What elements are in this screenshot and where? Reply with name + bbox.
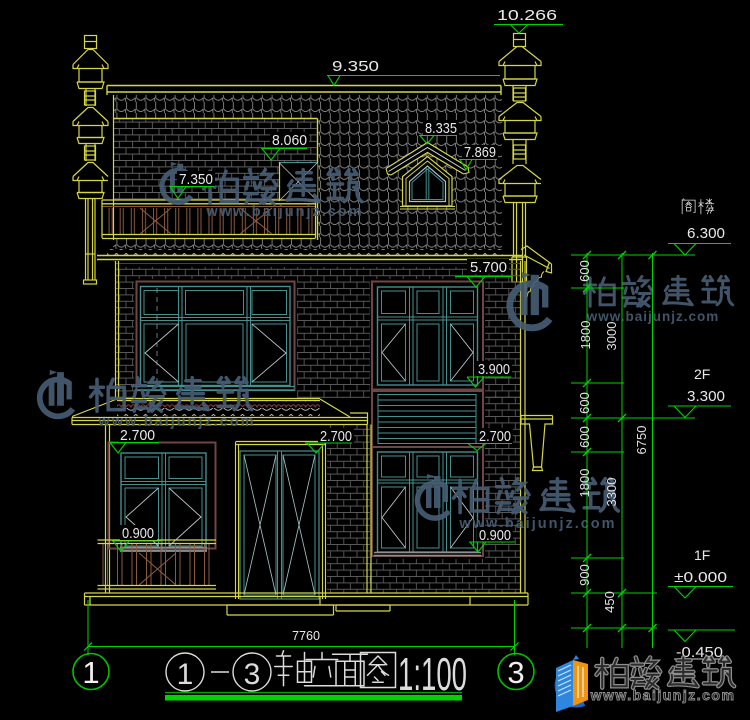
- svg-text:600: 600: [577, 392, 592, 414]
- svg-text:600: 600: [577, 260, 592, 282]
- svg-text:3300: 3300: [604, 478, 619, 507]
- svg-text:7760: 7760: [292, 628, 320, 643]
- svg-text:±0.000: ±0.000: [674, 569, 727, 586]
- svg-text:3: 3: [507, 655, 524, 690]
- svg-text:www.baijunjz.com: www.baijunjz.com: [590, 687, 736, 703]
- svg-text:3.300: 3.300: [687, 388, 725, 405]
- svg-text:9.350: 9.350: [332, 58, 379, 75]
- svg-text:7.869: 7.869: [464, 144, 496, 161]
- svg-text:2F: 2F: [694, 366, 710, 382]
- svg-text:600: 600: [577, 426, 592, 448]
- svg-text:1800: 1800: [577, 469, 592, 498]
- svg-text:1F: 1F: [694, 547, 710, 563]
- svg-text:8.060: 8.060: [272, 132, 307, 149]
- svg-text:3.900: 3.900: [478, 361, 510, 378]
- svg-text:6750: 6750: [634, 426, 649, 455]
- svg-text:7.350: 7.350: [179, 171, 213, 188]
- svg-text:900: 900: [577, 564, 592, 586]
- svg-text:10.266: 10.266: [497, 7, 557, 24]
- svg-text:0.900: 0.900: [122, 525, 154, 542]
- svg-text:450: 450: [602, 591, 617, 613]
- svg-text:1800: 1800: [578, 321, 593, 350]
- svg-text:1: 1: [82, 655, 99, 690]
- svg-text:5.700: 5.700: [470, 259, 507, 276]
- svg-text:www.baijunjz.com: www.baijunjz.com: [205, 204, 363, 220]
- svg-text:8.335: 8.335: [425, 120, 457, 137]
- svg-text:3: 3: [244, 658, 261, 691]
- svg-text:2.700: 2.700: [479, 428, 511, 445]
- svg-text:2.700: 2.700: [120, 427, 155, 444]
- svg-text:6.300: 6.300: [687, 225, 725, 242]
- svg-text:3000: 3000: [604, 322, 619, 351]
- svg-text:1: 1: [177, 658, 194, 691]
